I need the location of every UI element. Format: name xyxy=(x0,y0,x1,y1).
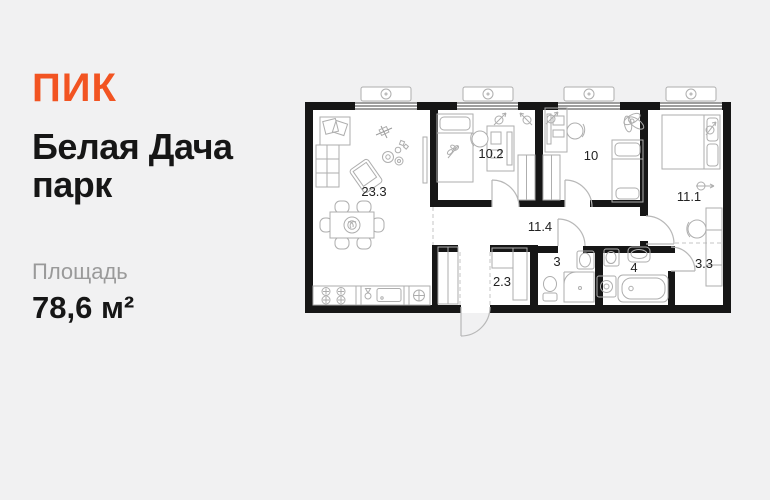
area-label: Площадь xyxy=(32,260,264,284)
floor-plan: 23.3 10.2 10 11.1 11.4 2.3 3 4 3.3 xyxy=(293,80,745,350)
room-label-bathroom-2: 4 xyxy=(630,260,637,275)
ac-unit-icon xyxy=(361,87,716,101)
vent-icon xyxy=(413,290,425,302)
room-label-bedroom-1: 10.2 xyxy=(478,146,503,161)
listing-card: { "page": { "background": "#f1f1f2" }, "… xyxy=(0,0,770,500)
room-label-bathroom-1: 3 xyxy=(553,254,560,269)
room-label-living: 23.3 xyxy=(361,184,386,199)
area-value: 78,6 м² xyxy=(32,291,264,325)
info-panel: ПИК Белая Дача парк Площадь 78,6 м² xyxy=(32,68,264,325)
room-label-storage: 2.3 xyxy=(493,274,511,289)
project-title: Белая Дача парк xyxy=(32,128,264,204)
room-label-hallway: 11.4 xyxy=(528,219,552,234)
pik-logo: ПИК xyxy=(32,68,264,108)
room-label-bedroom-3: 11.1 xyxy=(677,189,701,204)
room-label-wardrobe: 3.3 xyxy=(695,256,713,271)
floor-plan-svg: 23.3 10.2 10 11.1 11.4 2.3 3 4 3.3 xyxy=(293,80,745,350)
room-label-bedroom-2: 10 xyxy=(584,148,598,163)
